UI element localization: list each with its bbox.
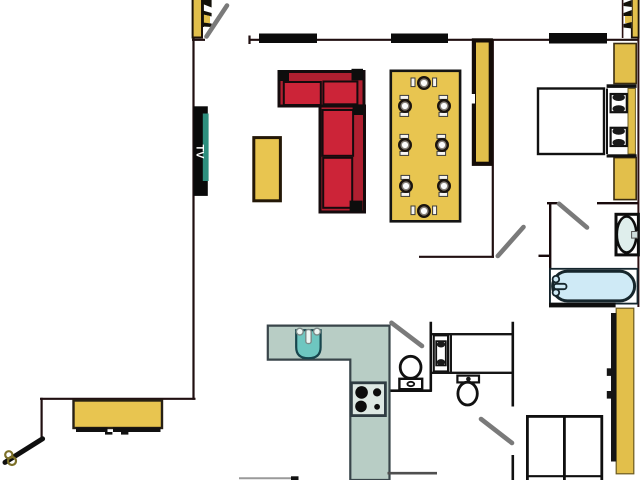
svg-text:TV: TV [193,144,205,159]
